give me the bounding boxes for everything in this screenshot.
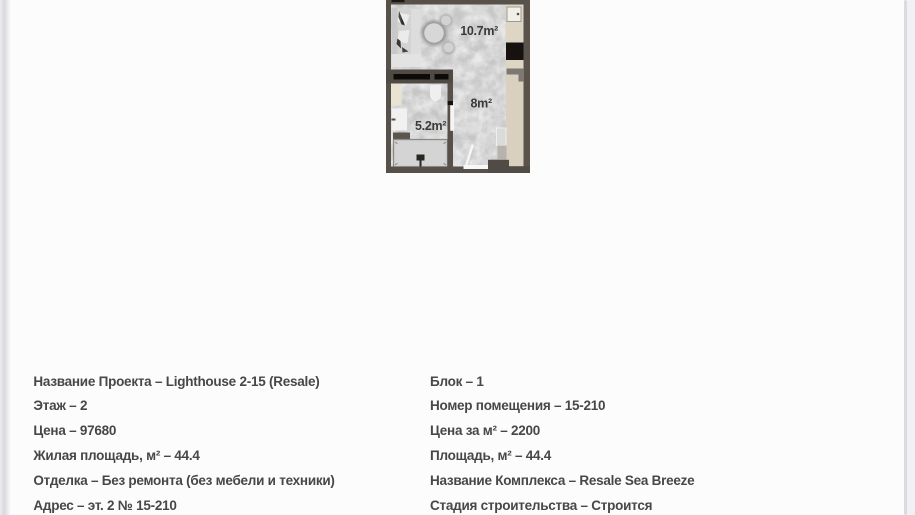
svg-text:8m²: 8m² <box>471 97 492 111</box>
svg-text:10.7m²: 10.7m² <box>460 24 498 38</box>
svg-text:5.2m²: 5.2m² <box>415 119 446 133</box>
